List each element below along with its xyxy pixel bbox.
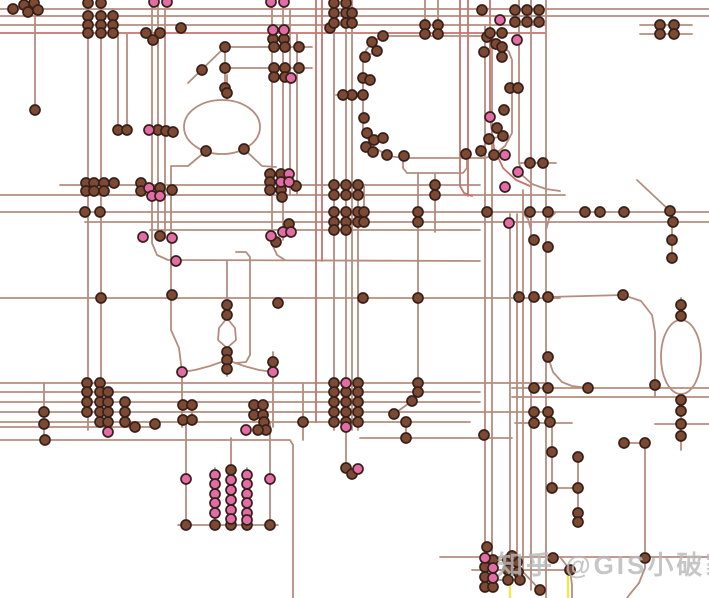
network-node-brown[interactable] xyxy=(484,134,494,144)
road-edge xyxy=(236,252,250,363)
network-node-brown[interactable] xyxy=(430,190,440,200)
network-node-brown[interactable] xyxy=(329,417,339,427)
network-node-brown[interactable] xyxy=(329,18,339,28)
network-node-brown[interactable] xyxy=(529,418,539,428)
road-edge xyxy=(637,180,670,211)
network-node-pink[interactable] xyxy=(266,0,276,7)
network-node-brown[interactable] xyxy=(150,419,160,429)
network-node-pink[interactable] xyxy=(155,191,165,201)
network-node-brown[interactable] xyxy=(413,217,423,227)
network-node-brown[interactable] xyxy=(329,397,339,407)
network-node-brown[interactable] xyxy=(461,149,471,159)
network-node-brown[interactable] xyxy=(341,180,351,190)
network-node-brown[interactable] xyxy=(513,83,523,93)
network-node-pink[interactable] xyxy=(265,474,275,484)
network-node-brown[interactable] xyxy=(382,150,392,160)
network-node-brown[interactable] xyxy=(368,147,378,157)
network-node-brown[interactable] xyxy=(378,31,388,41)
network-node-pink[interactable] xyxy=(279,0,289,7)
network-node-brown[interactable] xyxy=(220,63,230,73)
network-node-brown[interactable] xyxy=(529,292,539,302)
network-node-brown[interactable] xyxy=(479,430,489,440)
network-node-brown[interactable] xyxy=(358,90,368,100)
network-node-brown[interactable] xyxy=(341,397,351,407)
network-node-brown[interactable] xyxy=(497,28,507,38)
network-node-pink[interactable] xyxy=(286,73,296,83)
network-node-brown[interactable] xyxy=(399,151,409,161)
network-node-brown[interactable] xyxy=(40,435,50,445)
network-node-pink[interactable] xyxy=(279,25,289,35)
network-node-brown[interactable] xyxy=(329,190,339,200)
network-node-brown[interactable] xyxy=(329,207,339,217)
map-canvas[interactable]: 知乎 @GIS小破家 xyxy=(0,0,709,598)
network-node-pink[interactable] xyxy=(210,479,220,489)
network-node-brown[interactable] xyxy=(298,417,308,427)
network-node-brown[interactable] xyxy=(650,380,660,390)
network-node-brown[interactable] xyxy=(167,185,177,195)
network-node-pink[interactable] xyxy=(241,425,251,435)
network-node-brown[interactable] xyxy=(482,207,492,217)
network-node-brown[interactable] xyxy=(96,28,106,38)
network-node-pink[interactable] xyxy=(226,514,236,524)
network-node-brown[interactable] xyxy=(341,207,351,217)
road-network-map[interactable]: 知乎 @GIS小破家 xyxy=(0,0,709,598)
network-node-brown[interactable] xyxy=(359,207,369,217)
network-node-brown[interactable] xyxy=(82,407,92,417)
network-node-brown[interactable] xyxy=(545,417,555,427)
network-node-pink[interactable] xyxy=(504,218,514,228)
network-node-pink[interactable] xyxy=(242,515,252,525)
network-node-brown[interactable] xyxy=(547,483,557,493)
network-node-brown[interactable] xyxy=(573,517,583,527)
network-node-brown[interactable] xyxy=(359,113,369,123)
network-node-brown[interactable] xyxy=(525,158,535,168)
network-node-brown[interactable] xyxy=(277,192,287,202)
network-node-brown[interactable] xyxy=(525,207,535,217)
network-node-brown[interactable] xyxy=(358,293,368,303)
network-node-brown[interactable] xyxy=(329,8,339,18)
network-node-brown[interactable] xyxy=(226,465,236,475)
network-node-pink[interactable] xyxy=(353,464,363,474)
network-node-brown[interactable] xyxy=(420,29,430,39)
network-node-brown[interactable] xyxy=(514,292,524,302)
network-node-brown[interactable] xyxy=(222,300,232,310)
network-node-brown[interactable] xyxy=(120,407,130,417)
network-node-brown[interactable] xyxy=(341,0,351,8)
network-node-brown[interactable] xyxy=(665,206,675,216)
network-node-brown[interactable] xyxy=(543,207,553,217)
network-node-brown[interactable] xyxy=(201,146,211,156)
network-node-brown[interactable] xyxy=(676,431,686,441)
network-node-brown[interactable] xyxy=(329,387,339,397)
network-node-brown[interactable] xyxy=(347,18,357,28)
network-node-brown[interactable] xyxy=(543,407,553,417)
network-node-brown[interactable] xyxy=(353,387,363,397)
network-node-brown[interactable] xyxy=(433,29,443,39)
network-node-brown[interactable] xyxy=(534,5,544,15)
watermark: 知乎 @GIS小破家 xyxy=(497,550,709,580)
network-node-brown[interactable] xyxy=(258,400,268,410)
network-node-pink[interactable] xyxy=(177,367,187,377)
network-node-pink[interactable] xyxy=(144,125,154,135)
network-node-brown[interactable] xyxy=(353,407,363,417)
network-node-pink[interactable] xyxy=(226,495,236,505)
network-node-brown[interactable] xyxy=(534,17,544,27)
network-node-brown[interactable] xyxy=(96,0,106,8)
network-node-pink[interactable] xyxy=(341,422,351,432)
network-node-brown[interactable] xyxy=(430,180,440,190)
network-node-brown[interactable] xyxy=(96,293,106,303)
network-node-brown[interactable] xyxy=(269,72,279,82)
network-node-brown[interactable] xyxy=(543,383,553,393)
road-edge xyxy=(460,0,472,196)
network-node-brown[interactable] xyxy=(222,310,232,320)
network-node-brown[interactable] xyxy=(359,217,369,227)
network-node-brown[interactable] xyxy=(413,207,423,217)
network-node-brown[interactable] xyxy=(294,63,304,73)
network-node-brown[interactable] xyxy=(529,407,539,417)
road-edge xyxy=(548,357,588,388)
network-node-brown[interactable] xyxy=(83,28,93,38)
network-node-brown[interactable] xyxy=(479,47,489,57)
network-node-brown[interactable] xyxy=(122,125,132,135)
network-node-brown[interactable] xyxy=(329,180,339,190)
network-node-pink[interactable] xyxy=(210,508,220,518)
network-node-brown[interactable] xyxy=(676,300,686,310)
network-node-pink[interactable] xyxy=(500,150,510,160)
network-node-pink[interactable] xyxy=(226,485,236,495)
network-node-pink[interactable] xyxy=(284,177,294,187)
network-node-brown[interactable] xyxy=(498,131,508,141)
network-node-brown[interactable] xyxy=(168,127,178,137)
network-node-brown[interactable] xyxy=(103,407,113,417)
network-node-brown[interactable] xyxy=(23,7,33,17)
network-node-brown[interactable] xyxy=(155,231,165,241)
network-node-brown[interactable] xyxy=(103,397,113,407)
network-node-brown[interactable] xyxy=(489,150,499,160)
network-node-brown[interactable] xyxy=(268,357,278,367)
road-edge xyxy=(188,47,225,83)
network-node-brown[interactable] xyxy=(407,396,417,406)
network-node-brown[interactable] xyxy=(365,75,375,85)
network-node-brown[interactable] xyxy=(329,0,339,8)
network-node-brown[interactable] xyxy=(187,400,197,410)
network-node-brown[interactable] xyxy=(222,364,232,374)
network-node-brown[interactable] xyxy=(39,419,49,429)
network-node-brown[interactable] xyxy=(269,42,279,52)
network-node-brown[interactable] xyxy=(573,452,583,462)
network-node-pink[interactable] xyxy=(171,256,181,266)
network-node-brown[interactable] xyxy=(510,5,520,15)
network-node-pink[interactable] xyxy=(513,167,523,177)
network-node-brown[interactable] xyxy=(482,542,492,552)
network-node-brown[interactable] xyxy=(497,42,507,52)
network-node-brown[interactable] xyxy=(109,178,119,188)
network-node-brown[interactable] xyxy=(80,207,90,217)
network-node-brown[interactable] xyxy=(401,417,411,427)
network-node-brown[interactable] xyxy=(477,5,487,15)
network-node-brown[interactable] xyxy=(341,190,351,200)
network-node-brown[interactable] xyxy=(401,433,411,443)
network-node-pink[interactable] xyxy=(480,553,490,563)
network-node-brown[interactable] xyxy=(167,290,177,300)
network-node-brown[interactable] xyxy=(155,28,165,38)
network-node-brown[interactable] xyxy=(239,144,249,154)
network-node-brown[interactable] xyxy=(82,387,92,397)
network-node-brown[interactable] xyxy=(220,42,230,52)
network-node-brown[interactable] xyxy=(669,29,679,39)
network-node-pink[interactable] xyxy=(500,182,510,192)
road-edge xyxy=(548,295,655,397)
network-node-brown[interactable] xyxy=(210,520,220,530)
network-node-brown[interactable] xyxy=(83,0,93,8)
network-node-brown[interactable] xyxy=(197,65,207,75)
network-node-brown[interactable] xyxy=(676,311,686,321)
network-node-brown[interactable] xyxy=(89,186,99,196)
network-node-brown[interactable] xyxy=(294,42,304,52)
network-node-brown[interactable] xyxy=(33,5,43,15)
network-node-pink[interactable] xyxy=(181,474,191,484)
network-node-brown[interactable] xyxy=(538,158,548,168)
network-node-brown[interactable] xyxy=(583,383,593,393)
network-node-brown[interactable] xyxy=(329,407,339,417)
road-edge xyxy=(227,360,273,372)
network-node-pink[interactable] xyxy=(242,498,252,508)
network-node-brown[interactable] xyxy=(347,8,357,18)
network-node-brown[interactable] xyxy=(329,225,339,235)
network-node-brown[interactable] xyxy=(181,520,191,530)
network-node-brown[interactable] xyxy=(655,29,665,39)
network-node-brown[interactable] xyxy=(120,397,130,407)
network-node-brown[interactable] xyxy=(353,417,363,427)
network-node-brown[interactable] xyxy=(353,190,363,200)
road-edge xyxy=(403,158,467,173)
network-node-brown[interactable] xyxy=(39,407,49,417)
network-node-brown[interactable] xyxy=(497,52,507,62)
network-node-brown[interactable] xyxy=(103,387,113,397)
network-node-brown[interactable] xyxy=(676,406,686,416)
road-loop xyxy=(661,320,701,394)
network-node-pink[interactable] xyxy=(341,378,351,388)
network-node-brown[interactable] xyxy=(668,217,678,227)
network-node-brown[interactable] xyxy=(353,397,363,407)
network-node-pink[interactable] xyxy=(485,112,495,122)
network-node-pink[interactable] xyxy=(149,0,159,7)
network-node-brown[interactable] xyxy=(103,417,113,427)
network-node-brown[interactable] xyxy=(360,52,370,62)
network-node-pink[interactable] xyxy=(286,227,296,237)
network-node-brown[interactable] xyxy=(95,207,105,217)
network-node-brown[interactable] xyxy=(522,17,532,27)
network-node-brown[interactable] xyxy=(543,352,553,362)
network-node-brown[interactable] xyxy=(476,146,486,156)
network-node-pink[interactable] xyxy=(103,427,113,437)
road-edge xyxy=(227,318,236,348)
network-node-brown[interactable] xyxy=(265,520,275,530)
network-node-pink[interactable] xyxy=(162,0,172,7)
network-node-brown[interactable] xyxy=(378,133,388,143)
network-node-brown[interactable] xyxy=(485,28,495,38)
network-node-brown[interactable] xyxy=(573,483,583,493)
network-node-brown[interactable] xyxy=(353,180,363,190)
network-node-brown[interactable] xyxy=(176,23,186,33)
network-node-brown[interactable] xyxy=(187,415,197,425)
network-node-brown[interactable] xyxy=(222,88,232,98)
network-node-brown[interactable] xyxy=(130,422,140,432)
network-node-brown[interactable] xyxy=(253,425,263,435)
network-node-brown[interactable] xyxy=(619,207,629,217)
network-node-brown[interactable] xyxy=(619,438,629,448)
network-node-brown[interactable] xyxy=(108,28,118,38)
network-node-brown[interactable] xyxy=(413,387,423,397)
network-node-brown[interactable] xyxy=(510,17,520,27)
network-node-brown[interactable] xyxy=(522,5,532,15)
network-node-brown[interactable] xyxy=(389,409,399,419)
network-node-brown[interactable] xyxy=(99,186,109,196)
network-node-brown[interactable] xyxy=(273,298,283,308)
network-node-brown[interactable] xyxy=(543,292,553,302)
network-node-pink[interactable] xyxy=(512,35,522,45)
network-node-pink[interactable] xyxy=(268,25,278,35)
network-node-brown[interactable] xyxy=(82,397,92,407)
network-node-brown[interactable] xyxy=(341,225,351,235)
network-node-brown[interactable] xyxy=(547,447,557,457)
network-node-brown[interactable] xyxy=(280,42,290,52)
network-node-brown[interactable] xyxy=(30,105,40,115)
network-node-brown[interactable] xyxy=(535,585,545,595)
network-node-pink[interactable] xyxy=(138,232,148,242)
network-node-brown[interactable] xyxy=(595,207,605,217)
network-node-pink[interactable] xyxy=(210,498,220,508)
network-node-brown[interactable] xyxy=(667,235,677,245)
network-node-pink[interactable] xyxy=(242,479,252,489)
network-node-pink[interactable] xyxy=(268,367,278,377)
network-node-brown[interactable] xyxy=(8,4,18,14)
network-node-brown[interactable] xyxy=(618,290,628,300)
network-node-brown[interactable] xyxy=(543,242,553,252)
network-node-brown[interactable] xyxy=(580,207,590,217)
network-node-pink[interactable] xyxy=(266,231,276,241)
network-node-brown[interactable] xyxy=(676,395,686,405)
network-node-brown[interactable] xyxy=(120,417,130,427)
network-node-brown[interactable] xyxy=(413,293,423,303)
network-node-brown[interactable] xyxy=(529,235,539,245)
network-node-brown[interactable] xyxy=(265,185,275,195)
network-node-brown[interactable] xyxy=(640,438,650,448)
network-node-brown[interactable] xyxy=(338,90,348,100)
network-node-brown[interactable] xyxy=(341,407,351,417)
network-node-pink[interactable] xyxy=(167,233,177,243)
network-node-brown[interactable] xyxy=(529,383,539,393)
network-node-pink[interactable] xyxy=(226,475,236,485)
road-edge xyxy=(218,318,227,348)
network-node-brown[interactable] xyxy=(676,419,686,429)
road-edge xyxy=(182,360,227,372)
network-node-pink[interactable] xyxy=(495,15,505,25)
network-node-brown[interactable] xyxy=(667,253,677,263)
network-node-brown[interactable] xyxy=(499,105,509,115)
network-node-brown[interactable] xyxy=(372,46,382,56)
